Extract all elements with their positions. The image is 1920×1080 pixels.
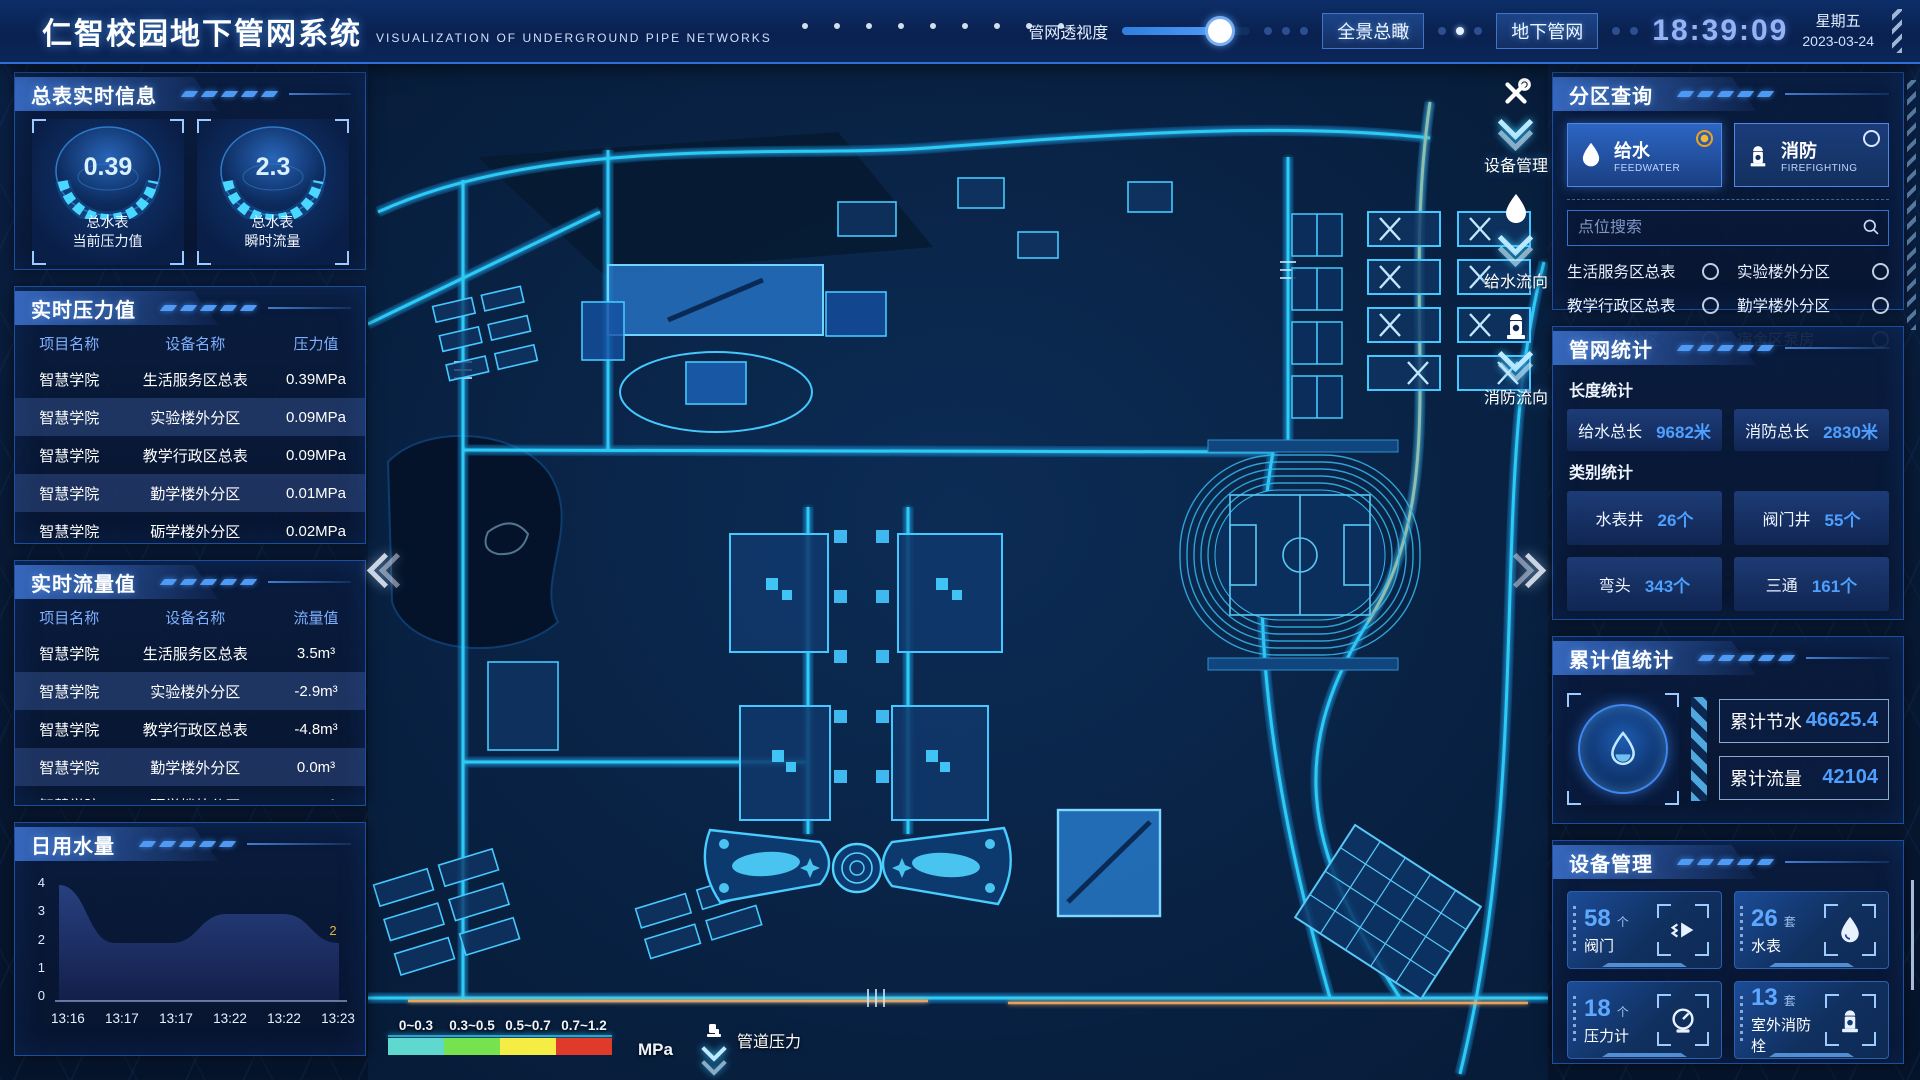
hazard-stripe-decoration xyxy=(1691,697,1707,801)
waterdrop-icon xyxy=(1578,140,1604,170)
slider-thumb[interactable] xyxy=(1205,16,1235,46)
hydrant-icon xyxy=(1745,140,1771,170)
radio-icon[interactable] xyxy=(1702,263,1719,280)
legend-swatch xyxy=(556,1038,612,1055)
app-subtitle: VISUALIZATION OF UNDERGROUND PIPE NETWOR… xyxy=(376,31,772,45)
table-row: 智慧学院勤学楼外分区0.01MPa xyxy=(15,474,365,512)
dots-decoration xyxy=(1438,27,1482,35)
overview-button[interactable]: 全景总瞰 xyxy=(1322,13,1424,49)
section-title: 总表实时信息 xyxy=(15,80,157,109)
length-stats-label: 长度统计 xyxy=(1569,377,1887,401)
table-row: 智慧学院实验楼外分区-2.9m³ xyxy=(15,672,365,710)
right-sidebar: 分区查询 给水 FEEDWATER xyxy=(1552,72,1904,1064)
map-prev-arrow[interactable] xyxy=(372,548,408,594)
table-row: 智慧学院生活服务区总表0.39MPa xyxy=(15,360,365,398)
panel-zone-query: 分区查询 给水 FEEDWATER xyxy=(1552,72,1904,310)
tool-label: 消防流向 xyxy=(1484,384,1548,408)
map-next-arrow[interactable] xyxy=(1516,548,1552,594)
chart-x-axis: 13:16 13:17 13:17 13:22 13:22 13:23 xyxy=(15,1007,365,1026)
cumulative-water-icon-box xyxy=(1567,693,1679,805)
weekday: 星期五 xyxy=(1816,12,1861,32)
slashes-decoration xyxy=(1679,345,1779,351)
campus-map-canvas[interactable] xyxy=(368,62,1548,1080)
stat-fire-length: 消防总长 2830米 xyxy=(1734,409,1889,451)
stat-feedwater-length: 给水总长 9682米 xyxy=(1567,409,1722,451)
section-title: 管网统计 xyxy=(1553,334,1653,363)
legend-range-labels: 0~0.3 0.3~0.5 0.5~0.7 0.7~1.2 xyxy=(388,1018,612,1033)
section-title: 设备管理 xyxy=(1553,848,1653,877)
flow-table: 智慧学院生活服务区总表3.5m³ 智慧学院实验楼外分区-2.9m³ 智慧学院教学… xyxy=(15,634,365,800)
legend-swatch xyxy=(388,1038,444,1055)
tool-device-management[interactable]: 设备管理 xyxy=(1484,76,1548,176)
header-dots-decoration xyxy=(802,23,1064,29)
column-header: 设备名称 xyxy=(124,607,268,628)
pressure-legend: 0~0.3 0.3~0.5 0.5~0.7 0.7~1.2 MPa 管道压力 xyxy=(388,1018,801,1072)
table-row: 智慧学院生活服务区总表3.5m³ xyxy=(15,634,365,672)
tool-label: 设备管理 xyxy=(1484,152,1548,176)
slashes-decoration xyxy=(1679,91,1779,97)
legend-unit: MPa xyxy=(638,1040,673,1060)
header-stripes-decoration xyxy=(1892,9,1902,53)
feedwater-toggle-button[interactable]: 给水 FEEDWATER xyxy=(1567,123,1722,187)
zone-point-item[interactable]: 勤学楼外分区 xyxy=(1737,288,1889,322)
table-row: 智慧学院实验楼外分区0.09MPa xyxy=(15,398,365,436)
table-row: 智慧学院砺学楼外分区2.3m³ xyxy=(15,786,365,800)
legend-range: 0~0.3 xyxy=(388,1018,444,1033)
button-label-cn: 给水 xyxy=(1614,137,1680,163)
slashes-decoration xyxy=(141,841,241,847)
date: 2023-03-24 xyxy=(1802,32,1874,50)
column-header: 设备名称 xyxy=(124,333,268,354)
gauge-label-line1: 总水表 xyxy=(73,213,143,232)
chart-end-value-label: 2 xyxy=(329,923,336,938)
zone-point-item[interactable]: 实验楼外分区 xyxy=(1737,254,1889,288)
app-header: 仁智校园地下管网系统 VISUALIZATION OF UNDERGROUND … xyxy=(0,0,1920,64)
gauge-dial-icon: 2.3 xyxy=(198,119,348,219)
tool-label: 给水流向 xyxy=(1484,268,1548,292)
pressure-gauge-icon xyxy=(1668,1005,1698,1035)
pipe-opacity-label: 管网透视度 xyxy=(1028,19,1108,43)
gauge-dial-icon: 0.39 xyxy=(33,119,183,219)
zone-point-item[interactable]: 生活服务区总表 xyxy=(1567,254,1719,288)
slashes-decoration xyxy=(162,579,262,585)
device-card-water-meters[interactable]: 26套 水表 xyxy=(1734,891,1889,969)
stat-elbow: 弯头 343个 xyxy=(1567,557,1722,611)
map-tools-overlay: 设备管理 给水流向 消防流向 xyxy=(1474,76,1558,424)
column-header: 流量值 xyxy=(267,607,365,628)
firefighting-radio[interactable] xyxy=(1863,130,1880,147)
right-edge-stripes-decoration xyxy=(1907,80,1916,330)
feedwater-radio[interactable] xyxy=(1696,130,1713,147)
column-header: 压力值 xyxy=(267,333,365,354)
water-meter-icon xyxy=(1836,914,1864,946)
table-row: 智慧学院教学行政区总表0.09MPa xyxy=(15,436,365,474)
panel-device-management: 设备管理 58个 阀门 26套 xyxy=(1552,840,1904,1064)
firefighting-toggle-button[interactable]: 消防 FIREFIGHTING xyxy=(1734,123,1889,187)
section-title: 实时压力值 xyxy=(15,294,136,323)
radio-icon[interactable] xyxy=(1872,263,1889,280)
gauge-value: 0.39 xyxy=(83,153,132,181)
table-header: 项目名称 设备名称 压力值 xyxy=(15,329,365,360)
slashes-decoration xyxy=(1700,655,1800,661)
column-header: 项目名称 xyxy=(15,607,124,628)
dots-decoration xyxy=(1612,27,1638,35)
table-row: 智慧学院勤学楼外分区0.0m³ xyxy=(15,748,365,786)
dots-decoration xyxy=(1264,27,1308,35)
device-card-outdoor-hydrants[interactable]: 13套 室外消防栓 xyxy=(1734,981,1889,1059)
radio-icon[interactable] xyxy=(1702,297,1719,314)
panel-meter-realtime: 总表实时信息 0.39 xyxy=(14,72,366,270)
legend-range: 0.5~0.7 xyxy=(500,1018,556,1033)
slashes-decoration xyxy=(183,91,283,97)
table-row: 智慧学院教学行政区总表-4.8m³ xyxy=(15,710,365,748)
legend-swatch xyxy=(444,1038,500,1055)
legend-range: 0.7~1.2 xyxy=(556,1018,612,1033)
table-header: 项目名称 设备名称 流量值 xyxy=(15,603,365,634)
cumulative-flow: 累计流量 42104 xyxy=(1719,756,1889,800)
gauge-value: 2.3 xyxy=(255,153,290,181)
section-title: 实时流量值 xyxy=(15,568,136,597)
stat-water-meter-well: 水表井 26个 xyxy=(1567,491,1722,545)
button-label-cn: 消防 xyxy=(1781,137,1858,163)
pressure-table: 智慧学院生活服务区总表0.39MPa 智慧学院实验楼外分区0.09MPa 智慧学… xyxy=(15,360,365,538)
chart-plot-area: 2 xyxy=(51,875,351,1007)
right-edge-scrollbar[interactable] xyxy=(1911,880,1914,990)
pipe-opacity-slider[interactable] xyxy=(1122,27,1250,35)
gauge-label-line2: 瞬时流量 xyxy=(245,232,301,251)
dashed-divider xyxy=(1567,199,1889,200)
underground-pipes-button[interactable]: 地下管网 xyxy=(1496,13,1598,49)
gauge-label-line1: 总水表 xyxy=(245,213,301,232)
panel-pipe-stats: 管网统计 长度统计 给水总长 9682米 消防总长 2830米 类别统计 水表井… xyxy=(1552,326,1904,620)
panel-realtime-pressure: 实时压力值 项目名称 设备名称 压力值 智慧学院生活服务区总表0.39MPa 智… xyxy=(14,286,366,544)
daily-water-chart: 4 3 2 1 0 2 xyxy=(15,865,365,1007)
panel-cumulative: 累计值统计 累计节水 46625.4 xyxy=(1552,636,1904,824)
valve-icon xyxy=(1668,915,1698,945)
gauge-instant-flow: 2.3 总水表 瞬时流量 xyxy=(197,119,349,265)
slashes-decoration xyxy=(162,305,262,311)
device-card-pressure-gauges[interactable]: 18个 压力计 xyxy=(1567,981,1722,1059)
app-title: 仁智校园地下管网系统 xyxy=(42,9,362,53)
search-icon[interactable] xyxy=(1862,218,1880,236)
stat-tee: 三通 161个 xyxy=(1734,557,1889,611)
tool-fire-flow[interactable]: 消防流向 xyxy=(1484,308,1548,408)
stat-valve-well: 阀门井 55个 xyxy=(1734,491,1889,545)
table-row: 智慧学院砺学楼外分区0.02MPa xyxy=(15,512,365,538)
section-title: 日用水量 xyxy=(15,830,115,859)
button-label-en: FEEDWATER xyxy=(1614,163,1680,174)
column-header: 项目名称 xyxy=(15,333,124,354)
hydrant-icon xyxy=(1836,1004,1864,1036)
device-card-valves[interactable]: 58个 阀门 xyxy=(1567,891,1722,969)
legend-swatch xyxy=(500,1038,556,1055)
chevron-down-icon xyxy=(701,1050,726,1075)
radio-icon[interactable] xyxy=(1872,297,1889,314)
section-title: 累计值统计 xyxy=(1553,644,1674,673)
legend-line xyxy=(388,1035,612,1037)
zone-point-item[interactable]: 教学行政区总表 xyxy=(1567,288,1719,322)
gauge-label-line2: 当前压力值 xyxy=(73,232,143,251)
pipe-pressure-icon[interactable] xyxy=(701,1022,727,1072)
clock-date: 星期五 2023-03-24 xyxy=(1802,12,1874,50)
pipe-pressure-label: 管道压力 xyxy=(737,1028,801,1052)
chart-y-axis: 4 3 2 1 0 xyxy=(19,875,51,1003)
legend-color-bar xyxy=(388,1038,612,1055)
clock-time: 18:39:09 xyxy=(1652,14,1788,48)
map-lake xyxy=(388,436,562,648)
legend-range: 0.3~0.5 xyxy=(444,1018,500,1033)
gauge-total-pressure: 0.39 总水表 当前压力值 xyxy=(32,119,184,265)
left-sidebar: 总表实时信息 0.39 xyxy=(14,72,366,1056)
search-input[interactable] xyxy=(1568,219,1888,237)
panel-daily-water: 日用水量 4 3 2 1 0 2 xyxy=(14,822,366,1056)
category-stats-label: 类别统计 xyxy=(1569,459,1887,483)
point-search xyxy=(1567,210,1889,246)
panel-realtime-flow: 实时流量值 项目名称 设备名称 流量值 智慧学院生活服务区总表3.5m³ 智慧学… xyxy=(14,560,366,806)
button-label-en: FIREFIGHTING xyxy=(1781,163,1858,174)
cumulative-saved-water: 累计节水 46625.4 xyxy=(1719,699,1889,743)
waterdrop-icon xyxy=(1578,704,1668,794)
slashes-decoration xyxy=(1679,859,1779,865)
tool-feedwater-flow[interactable]: 给水流向 xyxy=(1484,192,1548,292)
section-title: 分区查询 xyxy=(1553,80,1653,109)
